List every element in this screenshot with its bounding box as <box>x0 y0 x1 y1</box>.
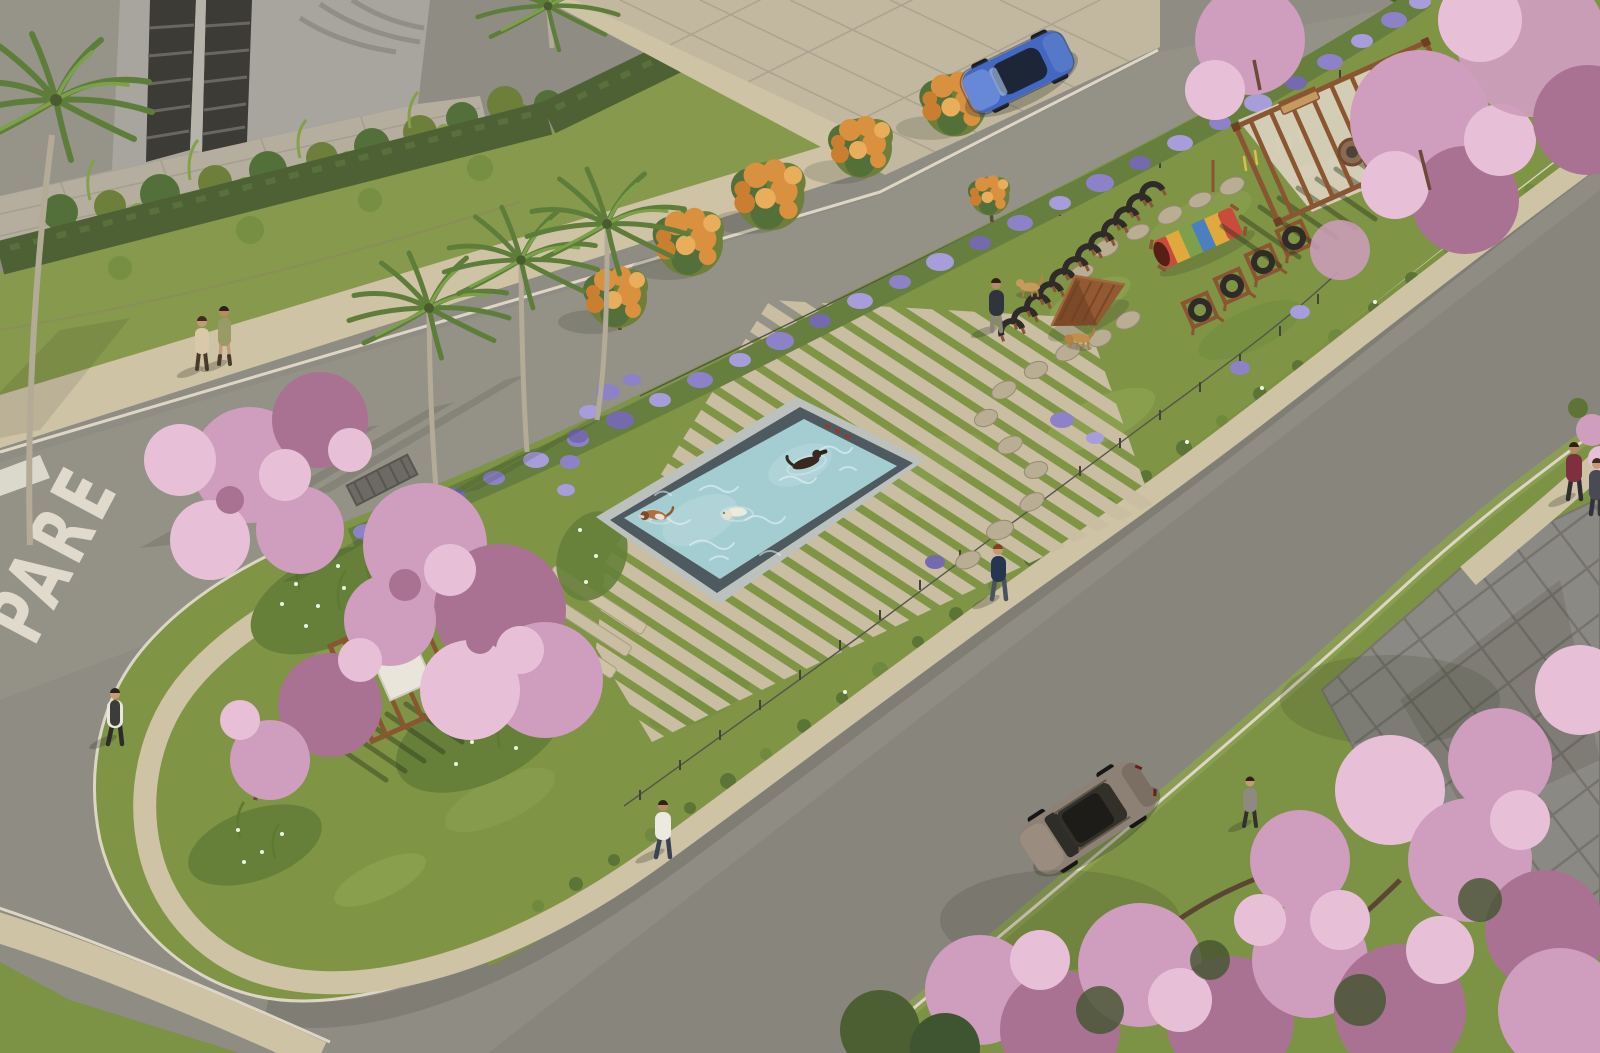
aerial-render: PARE <box>0 0 1600 1053</box>
